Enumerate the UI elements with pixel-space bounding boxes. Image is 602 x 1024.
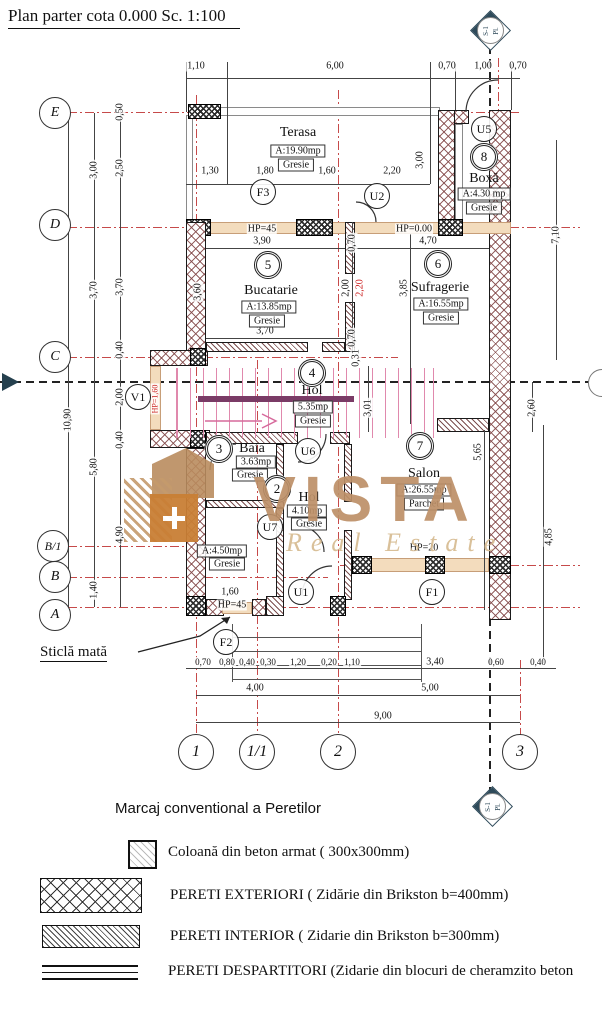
note-sticla-mata: Sticlă mată (40, 644, 107, 662)
column-bay-top (190, 348, 206, 366)
dim-label: 9,00 (373, 711, 393, 722)
dim-label: 1,20 (289, 657, 307, 667)
watermark-tagline-text: Real Estate (286, 528, 504, 558)
axis-bubble-E: E (39, 97, 71, 129)
dimension-line (556, 140, 557, 360)
axis-bubble-B: B (39, 561, 71, 593)
axis-bubble-A: A (39, 599, 71, 631)
dim-label: 2,00 (115, 387, 126, 407)
room-name-bucatarie: Bucatarie (244, 283, 298, 299)
dim-label: 4,00 (245, 683, 265, 694)
section-marker-s1-label: S-1 (482, 26, 490, 36)
hp-label-bucatarie: HP=45 (247, 224, 277, 235)
room-name-terasa: Terasa (280, 125, 316, 141)
column-u1-east (330, 596, 346, 616)
dimension-line (196, 722, 520, 723)
dim-label: 0,70 (347, 328, 358, 348)
opening-label-U1: U1 (288, 579, 314, 605)
dim-label: 6,00 (325, 61, 345, 72)
room-area-hol2: 4.10mp (287, 505, 327, 518)
wall-boxa-inner (455, 124, 463, 222)
dimension-line (186, 668, 556, 669)
dim-label: 3,01 (363, 398, 374, 418)
section-marker-pl-label: Pl. (492, 27, 500, 35)
axis-line-3-bottom (520, 660, 521, 735)
dim-label: 0,40 (238, 657, 256, 667)
dim-label: 1,60 (317, 166, 337, 177)
dim-label: 0,20 (320, 657, 338, 667)
legend-swatch-partition-wall (42, 965, 138, 980)
section-marker-top: S-1 Pl. (470, 10, 510, 50)
wall-hol2-east-lower (344, 530, 352, 600)
section-arrow-left-icon (2, 373, 19, 391)
wall-hol2-east-upper (344, 444, 352, 502)
room-floor-bucatarie: Gresie (249, 315, 285, 328)
legend-swatch-interior-wall (42, 925, 140, 948)
room-name-hol: Hol (302, 383, 323, 399)
room-number-boxa: 8 (472, 145, 496, 169)
dimension-line (196, 695, 520, 696)
axis-bubble-1: 1 (178, 734, 214, 770)
room-area-camera1: A:4.50mp (197, 545, 247, 558)
note-leader-arrowhead-icon (221, 617, 230, 624)
dim-label: 3,70 (115, 277, 126, 297)
dim-label: 0,30 (259, 657, 277, 667)
floor-plan-sheet: Plan parter cota 0.000 Sc. 1:100 (0, 0, 602, 1024)
wall-boxa-west (438, 110, 455, 222)
axis-bubble-2: 2 (320, 734, 356, 770)
room-number-bucatarie: 5 (256, 253, 280, 277)
opening-label-F2: F2 (213, 629, 239, 655)
dimension-line (355, 248, 489, 249)
dim-label: 1,10 (343, 657, 361, 667)
column-terasa-nw (188, 104, 221, 119)
legend-heading: Marcaj conventional a Peretilor (115, 800, 321, 817)
dim-label: 0,40 (529, 657, 547, 667)
legend-swatch-exterior-wall (40, 878, 142, 913)
room-number-salon: 7 (408, 434, 432, 458)
dim-label: 0,31 (351, 348, 362, 368)
dimension-line (206, 248, 345, 249)
dim-label: 4,70 (418, 236, 438, 247)
room-floor-baia: Gresie (232, 469, 268, 482)
watermark-logo-hatch-icon (124, 478, 172, 542)
dim-label: 3,70 (89, 280, 100, 300)
dim-label: 0,40 (115, 430, 126, 450)
axis-bubble-1-1: 1/1 (239, 734, 275, 770)
room-name-sufragerie: Sufragerie (411, 280, 469, 296)
dim-label: 1,00 (473, 61, 493, 72)
wall-baia-south (206, 500, 284, 508)
room-floor-hol2: Gresie (291, 518, 327, 531)
wall-terasa-north (188, 107, 440, 116)
dim-label: 1,40 (89, 580, 100, 600)
dim-label: 2,20 (355, 278, 366, 298)
column-b1-mid (425, 556, 445, 574)
opening-label-F1: F1 (419, 579, 445, 605)
section-marker-right-icon (588, 369, 602, 397)
legend-item-partition-wall: PERETI DESPARTITORI (Zidarie din blocuri… (168, 963, 573, 980)
room-area-terasa: A:19.90mp (270, 145, 325, 158)
entrance-steps (232, 624, 422, 682)
dim-label: 3,85 (399, 278, 410, 298)
dim-label: 0,70 (194, 657, 212, 667)
room-floor-hol: Gresie (295, 415, 331, 428)
wall-exterior-west-lower (186, 448, 206, 612)
hp-label-salon: HP=20 (409, 543, 439, 554)
dim-label: 0,70 (347, 233, 358, 253)
axis-bubble-C: C (39, 341, 71, 373)
room-name-salon: Salon (408, 466, 440, 482)
axis-bubble-3: 3 (502, 734, 538, 770)
axis-bubble-D: D (39, 209, 71, 241)
wall-bucatarie-south (206, 342, 308, 352)
dimension-line (206, 338, 345, 339)
room-name-boxa: Boxă (469, 171, 499, 187)
dimension-line (186, 78, 520, 79)
room-area-salon: A:26.55mp (396, 484, 451, 497)
dim-label: 2,50 (115, 158, 126, 178)
column-north-3 (438, 219, 463, 236)
room-area-bucatarie: A:13.85mp (241, 301, 296, 314)
room-area-boxa: A:4.30 mp (458, 188, 511, 201)
section-marker-circle-icon: S-1 Pl. (479, 793, 506, 820)
dim-label: 7,10 (551, 225, 562, 245)
section-marker-s1-label: S-1 (484, 802, 492, 812)
hp-label-sufragerie: HP=0.00 (395, 224, 433, 235)
dim-label: 4,90 (115, 525, 126, 545)
legend-item-column: Coloană din beton armat ( 300x300mm) (168, 844, 409, 861)
section-marker-circle-icon: S-1 Pl. (477, 17, 504, 44)
wall-bucatarie-south-stub (322, 342, 345, 352)
dim-label: 0,60 (487, 657, 505, 667)
hp-label-v1: HP=1,60 (151, 384, 160, 415)
opening-label-F3: F3 (250, 179, 276, 205)
wall-terasa-west (186, 115, 193, 222)
opening-label-U6: U6 (295, 438, 321, 464)
wall-south-2 (252, 599, 266, 616)
plan-title: Plan parter cota 0.000 Sc. 1:100 (8, 6, 240, 29)
dim-label: 4,85 (544, 527, 555, 547)
room-area-hol: 5.35mp (293, 401, 333, 414)
legend-swatch-column (128, 840, 157, 869)
dim-label: 0,50 (115, 102, 126, 122)
dimension-extension (430, 62, 431, 184)
dim-label: 10,90 (63, 408, 74, 433)
legend-item-exterior-wall: PERETI EXTERIORI ( Zidărie din Brikston … (170, 887, 508, 904)
window-F1-strip (352, 558, 489, 572)
room-floor-terasa: Gresie (278, 159, 314, 172)
dim-label: 3,90 (252, 236, 272, 247)
dim-label: 5,00 (420, 683, 440, 694)
column-north-2 (296, 219, 333, 236)
dim-label: 3,40 (425, 657, 445, 668)
dim-label: 0,80 (218, 657, 236, 667)
dim-label: 3,00 (415, 150, 426, 170)
opening-label-U7: U7 (257, 514, 283, 540)
dim-label: 5,80 (89, 457, 100, 477)
dimension-line (484, 430, 485, 610)
dim-label: 1,10 (186, 61, 206, 72)
dim-label: 3,60 (193, 282, 204, 302)
opening-label-V1: V1 (125, 384, 151, 410)
column-sw (186, 596, 206, 616)
room-number-hol2: 2 (265, 477, 289, 501)
dim-label: 0,70 (437, 61, 457, 72)
room-floor-boxa: Gresie (466, 202, 502, 215)
dim-label: 2,00 (341, 278, 352, 298)
room-number-hol: 4 (300, 361, 324, 385)
dim-label: 2,60 (527, 398, 538, 418)
dim-label: 3,00 (89, 160, 100, 180)
room-floor-camera1: Gresie (209, 558, 245, 571)
room-floor-sufragerie: Gresie (423, 312, 459, 325)
section-marker-bottom: S-1 Pl. (472, 786, 512, 826)
room-area-sufragerie: A:16.55mp (413, 298, 468, 311)
section-marker-pl-label: Pl. (494, 803, 502, 811)
column-b1-right (489, 556, 511, 574)
opening-label-U5: U5 (471, 116, 497, 142)
column-b1-left (352, 556, 372, 574)
legend-item-interior-wall: PERETI INTERIOR ( Zidarie din Brikston b… (170, 928, 499, 945)
door-arc-boxa (466, 80, 498, 112)
dim-label: 0,40 (115, 340, 126, 360)
room-floor-salon: Parchet (404, 498, 444, 511)
hp-label-intrare: HP=45 (217, 600, 247, 611)
dim-label: 1,60 (220, 587, 240, 598)
dim-label: 0,70 (508, 61, 528, 72)
room-number-sufragerie: 6 (426, 252, 450, 276)
room-number-baia: 3 (207, 437, 231, 461)
room-area-baia: 3.63mp (236, 456, 276, 469)
opening-label-U2: U2 (364, 183, 390, 209)
dim-label: 2,20 (382, 166, 402, 177)
wall-sufragerie-south (437, 418, 489, 432)
axis-line-B1 (68, 546, 188, 547)
dimension-line (186, 184, 430, 185)
dim-label: 1,30 (200, 166, 220, 177)
dim-label: 1,80 (255, 166, 275, 177)
wall-south-3 (266, 596, 284, 616)
axis-bubble-B1: B/1 (37, 530, 69, 562)
dimension-line (94, 113, 95, 607)
dim-label: 5,65 (473, 442, 484, 462)
dimension-extension (227, 62, 228, 184)
